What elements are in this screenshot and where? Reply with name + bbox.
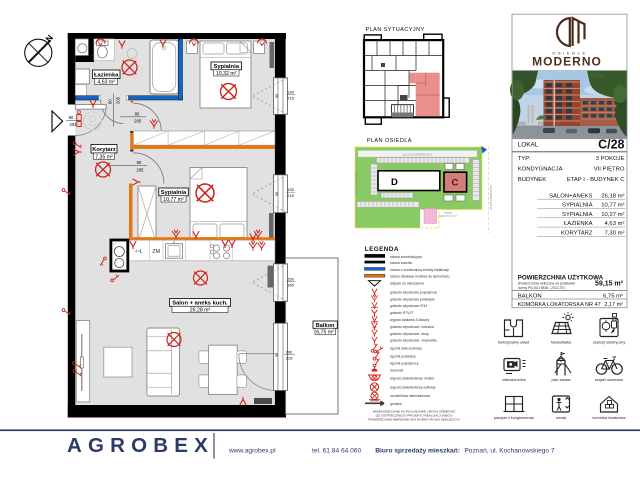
svg-text:wypust oświetleniowy- kinkiet: wypust oświetleniowy- kinkiet: [390, 376, 434, 380]
svg-text:90: 90: [275, 94, 279, 98]
svg-text:plac zabaw: plac zabaw: [552, 378, 571, 382]
svg-text:wejście do mieszkania: wejście do mieszkania: [390, 282, 424, 286]
svg-text:BUDYNEK: BUDYNEK: [518, 177, 547, 183]
svg-text:TYP:: TYP:: [518, 156, 531, 162]
svg-text:204: 204: [70, 122, 78, 127]
svg-text:7,30 m²: 7,30 m²: [605, 231, 625, 237]
svg-text:stojaki rowerowe: stojaki rowerowe: [595, 378, 623, 382]
svg-text:80: 80: [137, 160, 142, 165]
svg-text:C/28: C/28: [598, 138, 624, 152]
svg-text:gniazdo wtyczkowe- okap: gniazdo wtyczkowe- okap: [390, 332, 429, 336]
svg-text:90: 90: [275, 192, 279, 196]
svg-text:80: 80: [108, 99, 113, 104]
svg-text:205: 205: [137, 168, 145, 173]
svg-text:3 POKOJE: 3 POKOJE: [596, 156, 625, 162]
svg-text:fotowoltaika: fotowoltaika: [551, 340, 572, 344]
svg-text:6,75 m²: 6,75 m²: [603, 293, 623, 299]
svg-text:90: 90: [69, 115, 74, 120]
svg-text:wypust oświetleniowy sufitowy: wypust oświetleniowy sufitowy: [390, 385, 436, 389]
svg-text:ściana działowa możliwa do dem: ściana działowa możliwa do demontażu: [390, 275, 450, 279]
svg-text:POWIERZCHNIA UŻYTKOWA: POWIERZCHNIA UŻYTKOWA: [518, 275, 604, 282]
svg-text:2,17 m²: 2,17 m²: [604, 302, 623, 308]
svg-text:4,63 m²: 4,63 m²: [605, 221, 625, 227]
svg-text:KOMÓRKA LOKATORSKA NR 47: KOMÓRKA LOKATORSKA NR 47: [518, 301, 601, 308]
svg-text:gniazdo wtyczkowe- zmywarka: gniazdo wtyczkowe- zmywarka: [390, 339, 437, 343]
svg-text:www.agrobex.pl: www.agrobex.pl: [228, 448, 276, 455]
svg-text:ZM: ZM: [152, 249, 160, 255]
svg-text:grzejnik: grzejnik: [390, 402, 402, 406]
svg-text:ETAP I - BUDYNEK C: ETAP I - BUDYNEK C: [567, 177, 625, 183]
svg-text:Poznań, ul. Kochanowskiego 7: Poznań, ul. Kochanowskiego 7: [464, 448, 555, 455]
svg-text:N: N: [43, 33, 55, 44]
svg-text:80: 80: [135, 111, 140, 116]
svg-text:⇦L: ⇦L: [135, 249, 143, 255]
svg-text:205: 205: [134, 119, 142, 124]
svg-text:ULICA TOPOLOWA: ULICA TOPOLOWA: [489, 185, 493, 210]
svg-text:INWESTYCYJNY: INWESTYCYJNY: [439, 215, 458, 218]
svg-text:SALON+ANEKS: SALON+ANEKS: [549, 193, 592, 199]
svg-text:łącznik pojedynczy: łącznik pojedynczy: [390, 362, 419, 366]
svg-text:MODERNO: MODERNO: [532, 54, 602, 68]
svg-text:ściana konstrukcyjna: ściana konstrukcyjna: [390, 255, 422, 259]
svg-text:LEGENDA: LEGENDA: [365, 246, 399, 253]
svg-text:Korytarz: Korytarz: [92, 147, 116, 153]
svg-text:ULICA OGRODOWA: ULICA OGRODOWA: [355, 171, 359, 195]
svg-text:gniazdo wtyczkowe pojedyncze: gniazdo wtyczkowe pojedyncze: [390, 290, 437, 294]
svg-text:150: 150: [287, 282, 294, 287]
svg-text:130: 130: [287, 187, 294, 192]
svg-text:Sypialnia: Sypialnia: [213, 64, 239, 70]
svg-text:LOKAL: LOKAL: [518, 141, 539, 148]
svg-text:Salon + aneks kuch.: Salon + aneks kuch.: [172, 301, 228, 307]
svg-text:SYPIALNIA: SYPIALNIA: [562, 212, 593, 218]
svg-text:215: 215: [287, 96, 294, 101]
svg-text:ULICA SZCZEPANKOWO: ULICA SZCZEPANKOWO: [402, 152, 432, 156]
svg-text:215: 215: [286, 355, 293, 360]
svg-text:rozdzielnica mieszkaniowa: rozdzielnica mieszkaniowa: [390, 394, 430, 398]
svg-text:gniazdo wtyczkowe IP44: gniazdo wtyczkowe IP44: [390, 304, 427, 308]
svg-text:osprzęt elektryczny: osprzęt elektryczny: [593, 340, 626, 344]
svg-text:Sypialnia: Sypialnia: [161, 190, 187, 196]
svg-text:BALKON: BALKON: [518, 293, 542, 299]
svg-text:SYPIALNIA: SYPIALNIA: [562, 203, 593, 209]
svg-text:4,63 m²: 4,63 m²: [97, 80, 115, 86]
svg-text:D: D: [391, 177, 398, 188]
svg-text:KONDYGNACJA: KONDYGNACJA: [518, 167, 563, 173]
svg-text:PLAN OSIEDLA: PLAN OSIEDLA: [367, 138, 412, 144]
svg-text:215: 215: [287, 193, 294, 198]
svg-text:komórka lokatorska: komórka lokatorska: [593, 416, 627, 420]
svg-text:10,77 m²: 10,77 m²: [601, 203, 624, 209]
svg-text:26,28 m²: 26,28 m²: [190, 307, 211, 313]
svg-text:6,75 m²: 6,75 m²: [316, 330, 334, 336]
svg-text:7,35 m²: 7,35 m²: [95, 154, 113, 160]
svg-text:wypust zasilania 3-fazowy: wypust zasilania 3-fazowy: [390, 318, 430, 322]
svg-text:gniazdo RTV/IT: gniazdo RTV/IT: [390, 311, 414, 315]
svg-text:PLAN SYTUACYJNY: PLAN SYTUACYJNY: [366, 27, 425, 33]
svg-text:ściana z możliwością zmiany lo: ściana z możliwością zmiany lokalizacji: [390, 268, 449, 272]
svg-text:ściana szachtu: ściana szachtu: [390, 261, 413, 265]
svg-text:C: C: [452, 178, 459, 189]
svg-text:10,77 m²: 10,77 m²: [163, 197, 184, 203]
svg-text:VII PIĘTRO: VII PIĘTRO: [594, 167, 625, 173]
svg-text:łącznik świecznikowy: łącznik świecznikowy: [390, 347, 422, 351]
svg-text:KORYTARZ: KORYTARZ: [561, 231, 593, 237]
svg-text:26,18 m²: 26,18 m²: [601, 193, 624, 199]
svg-text:dzwonek: dzwonek: [390, 369, 404, 373]
svg-text:gniazdo wtyczkowe podwójne: gniazdo wtyczkowe podwójne: [390, 297, 435, 301]
svg-text:videodomofon: videodomofon: [502, 378, 526, 382]
svg-text:tel. 61 84 64 060: tel. 61 84 64 060: [312, 448, 361, 455]
svg-text:10,32 m²: 10,32 m²: [216, 71, 237, 77]
svg-text:205: 205: [116, 96, 121, 104]
svg-text:Balkon: Balkon: [316, 323, 335, 329]
svg-text:parapet z konglomeratu: parapet z konglomeratu: [494, 416, 534, 420]
svg-text:ŁAZIENKA: ŁAZIENKA: [564, 221, 593, 227]
svg-text:130: 130: [287, 90, 294, 95]
svg-text:59,15 m²: 59,15 m²: [595, 281, 624, 288]
svg-text:łącznik podwójny: łącznik podwójny: [390, 355, 416, 359]
svg-text:10,27 m²: 10,27 m²: [601, 212, 624, 218]
svg-text:AGROBEX: AGROBEX: [67, 434, 214, 457]
svg-text:90: 90: [275, 353, 279, 357]
svg-text:normy PN-ISO 9836 : 2022-07): normy PN-ISO 9836 : 2022-07): [518, 286, 565, 290]
svg-text:150: 150: [287, 276, 294, 281]
svg-text:Łazienka: Łazienka: [94, 73, 119, 79]
svg-text:Biuro sprzedaży mieszkań:: Biuro sprzedaży mieszkań:: [375, 448, 460, 455]
svg-text:funkcjonalny układ: funkcjonalny układ: [498, 340, 529, 344]
svg-text:gniazdo wtyczkowe- lodówka: gniazdo wtyczkowe- lodówka: [390, 325, 434, 329]
svg-text:POWIERZCHNIE MIERZONE W/G NORM: POWIERZCHNIE MIERZONE W/G NORMY PN-ISO 9…: [368, 418, 460, 422]
svg-text:200: 200: [286, 349, 293, 354]
svg-text:winda: winda: [556, 416, 567, 420]
